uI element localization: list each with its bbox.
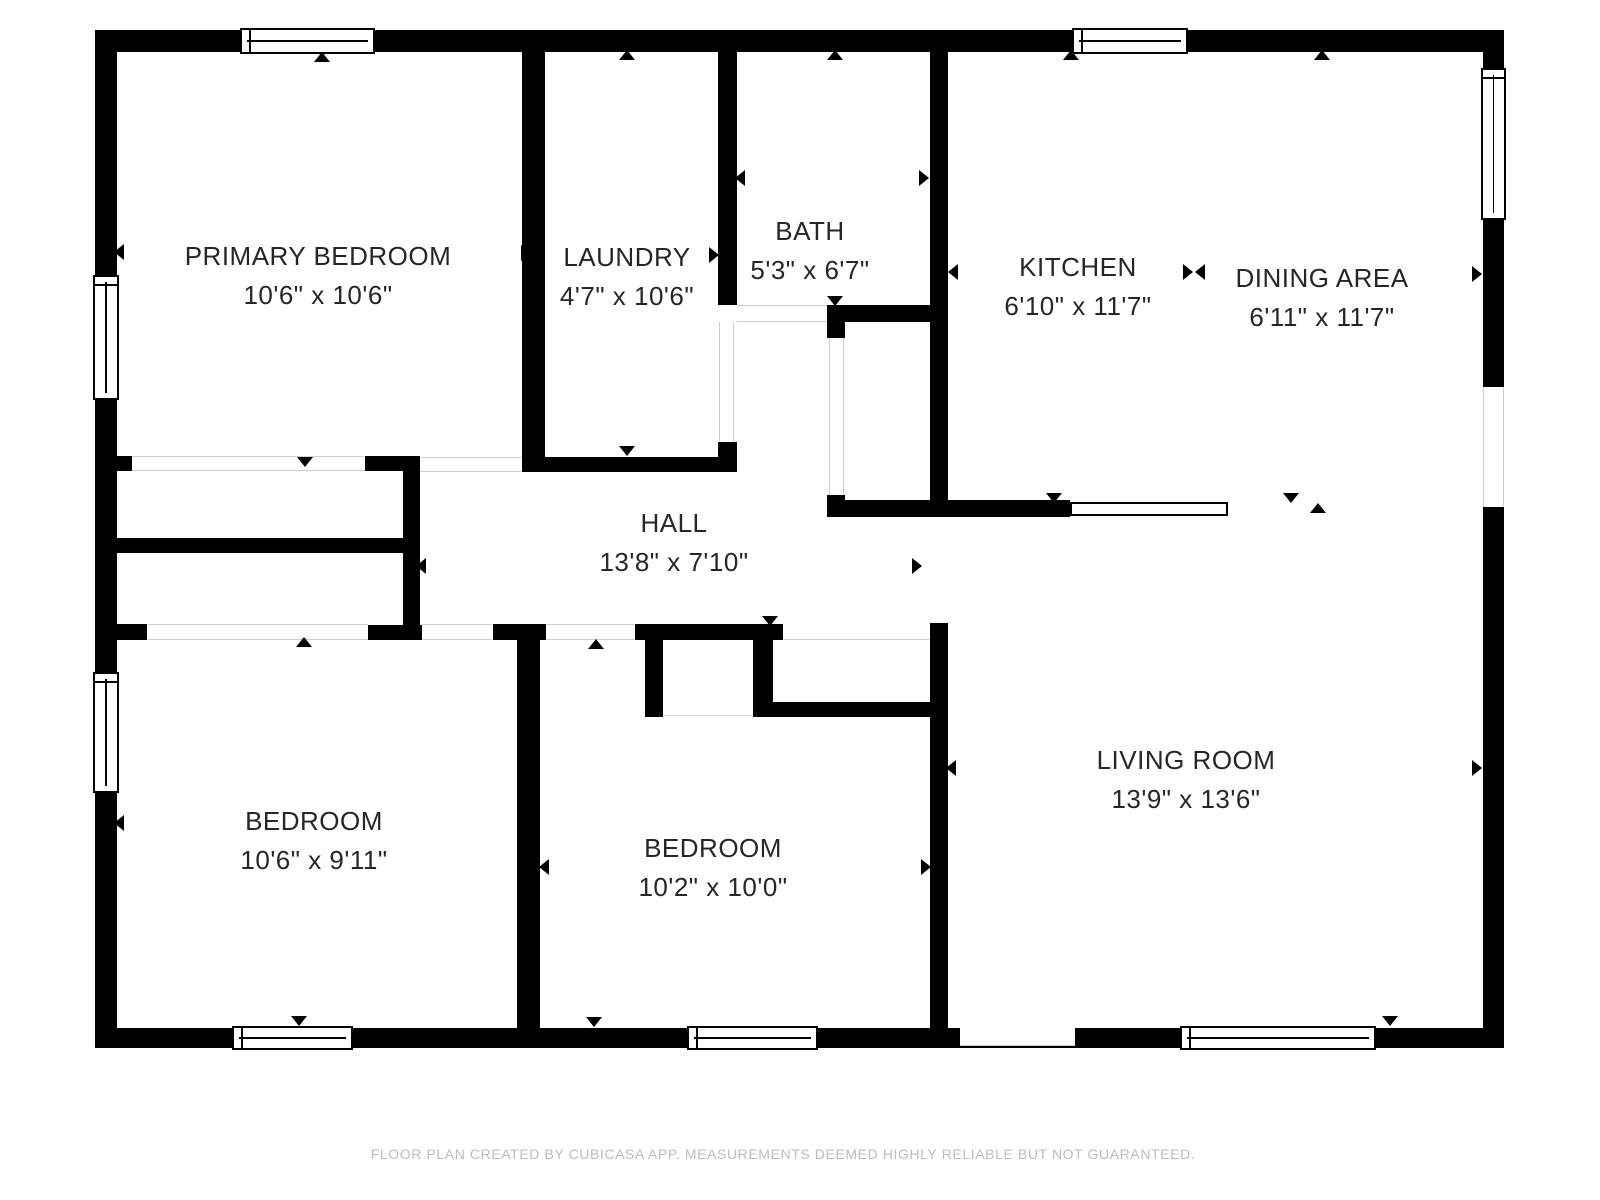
opening-arrow-icon	[1310, 503, 1326, 513]
opening-arrow-icon	[416, 558, 426, 574]
wall	[827, 500, 1070, 517]
opening-arrow-icon	[619, 446, 635, 456]
opening-arrow-icon	[521, 245, 531, 261]
doorway-opening	[422, 624, 493, 640]
room-dimensions: 13'9" x 13'6"	[1097, 780, 1276, 819]
opening-arrow-icon	[948, 264, 958, 280]
opening-arrow-icon	[921, 859, 931, 875]
room-label-bedroom-left: BEDROOM10'6" x 9'11"	[240, 802, 387, 880]
wall	[827, 322, 845, 338]
wall	[545, 457, 737, 472]
wall	[368, 625, 422, 640]
wall	[95, 30, 117, 1048]
opening-arrow-icon	[1314, 50, 1330, 60]
room-dimensions: 10'6" x 9'11"	[240, 841, 387, 880]
wall	[930, 52, 948, 517]
opening-arrow-icon	[1046, 493, 1062, 503]
opening-arrow-icon	[1063, 50, 1079, 60]
room-dimensions: 13'8" x 7'10"	[599, 543, 748, 582]
opening-arrow-icon	[314, 52, 330, 62]
doorway-opening	[1483, 387, 1504, 507]
opening-arrow-icon	[1382, 1016, 1398, 1026]
window	[1180, 1026, 1376, 1050]
opening-arrow-icon	[539, 859, 549, 875]
room-label-primary-bedroom: PRIMARY BEDROOM10'6" x 10'6"	[185, 237, 452, 315]
room-label-living-room: LIVING ROOM13'9" x 13'6"	[1097, 741, 1276, 819]
room-label-bedroom-middle: BEDROOM10'2" x 10'0"	[638, 829, 787, 907]
window	[687, 1026, 818, 1050]
room-name: LIVING ROOM	[1097, 741, 1276, 780]
doorway-opening	[420, 457, 522, 472]
window	[1481, 68, 1506, 220]
opening-arrow-icon	[114, 815, 124, 831]
opening-arrow-icon	[586, 1017, 602, 1027]
opening-arrow-icon	[535, 245, 545, 261]
room-dimensions: 10'6" x 10'6"	[185, 276, 452, 315]
opening-arrow-icon	[1183, 264, 1193, 280]
opening-arrow-icon	[827, 296, 843, 306]
opening-arrow-icon	[291, 1016, 307, 1026]
opening-arrow-icon	[1472, 760, 1482, 776]
doorway-opening	[737, 305, 827, 322]
opening-arrow-icon	[946, 760, 956, 776]
room-label-kitchen: KITCHEN6'10" x 11'7"	[1004, 248, 1151, 326]
room-name: PRIMARY BEDROOM	[185, 237, 452, 276]
footer-disclaimer: FLOOR PLAN CREATED BY CUBICASA APP. MEAS…	[371, 1146, 1196, 1162]
doorway-opening	[719, 322, 734, 442]
room-dimensions: 10'2" x 10'0"	[638, 868, 787, 907]
room-name: LAUNDRY	[560, 238, 694, 277]
opening-arrow-icon	[709, 247, 719, 263]
opening-arrow-icon	[735, 170, 745, 186]
room-dimensions: 6'11" x 11'7"	[1235, 298, 1408, 337]
opening-arrow-icon	[1195, 264, 1205, 280]
window	[1072, 28, 1188, 54]
wall	[753, 702, 948, 717]
room-dimensions: 4'7" x 10'6"	[560, 277, 694, 316]
wall	[117, 456, 132, 471]
window	[240, 28, 375, 54]
wall	[117, 538, 403, 553]
opening-arrow-icon	[588, 639, 604, 649]
opening-arrow-icon	[619, 50, 635, 60]
doorway-opening	[546, 624, 635, 640]
opening-arrow-icon	[1472, 266, 1482, 282]
wall	[930, 623, 948, 1048]
doorway-opening	[960, 1028, 1075, 1046]
room-name: BEDROOM	[638, 829, 787, 868]
opening-arrow-icon	[1283, 493, 1299, 503]
opening-arrow-icon	[519, 823, 529, 839]
room-name: BEDROOM	[240, 802, 387, 841]
wall	[117, 624, 147, 640]
kitchen-counter	[1070, 502, 1228, 516]
room-dimensions: 5'3" x 6'7"	[750, 251, 869, 290]
opening-arrow-icon	[296, 637, 312, 647]
room-label-laundry: LAUNDRY4'7" x 10'6"	[560, 238, 694, 316]
doorway-opening	[663, 703, 753, 716]
room-name: KITCHEN	[1004, 248, 1151, 287]
doorway-opening	[829, 338, 844, 495]
floor-plan-canvas: FLOOR PLAN CREATED BY CUBICASA APP. MEAS…	[0, 0, 1600, 1200]
wall	[403, 456, 420, 640]
room-label-hall: HALL13'8" x 7'10"	[599, 504, 748, 582]
opening-arrow-icon	[919, 170, 929, 186]
room-label-bath: BATH5'3" x 6'7"	[750, 212, 869, 290]
room-label-dining-area: DINING AREA6'11" x 11'7"	[1235, 259, 1408, 337]
room-name: BATH	[750, 212, 869, 251]
wall	[522, 52, 545, 472]
opening-arrow-icon	[762, 616, 778, 626]
doorway-opening	[783, 624, 930, 640]
doorway-opening	[147, 624, 368, 640]
wall	[645, 638, 663, 717]
room-name: HALL	[599, 504, 748, 543]
room-name: DINING AREA	[1235, 259, 1408, 298]
window	[93, 275, 119, 400]
opening-arrow-icon	[827, 50, 843, 60]
opening-arrow-icon	[297, 457, 313, 467]
wall	[753, 638, 773, 702]
doorway-opening	[132, 456, 365, 471]
room-dimensions: 6'10" x 11'7"	[1004, 287, 1151, 326]
opening-arrow-icon	[114, 244, 124, 260]
window	[232, 1026, 353, 1050]
opening-arrow-icon	[912, 558, 922, 574]
window	[93, 672, 119, 793]
